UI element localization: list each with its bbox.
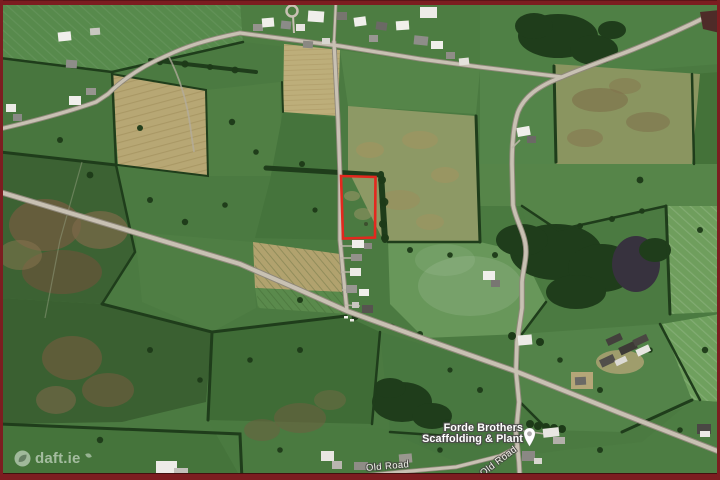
frame-border-left <box>0 0 3 480</box>
satellite-imagery <box>0 0 720 480</box>
poi-map-pin[interactable] <box>522 427 537 449</box>
frame-border-top <box>0 0 720 5</box>
frame-border-bottom <box>0 473 720 480</box>
map-viewport[interactable]: Forde Brothers Scaffolding & Plant Old R… <box>0 0 720 480</box>
